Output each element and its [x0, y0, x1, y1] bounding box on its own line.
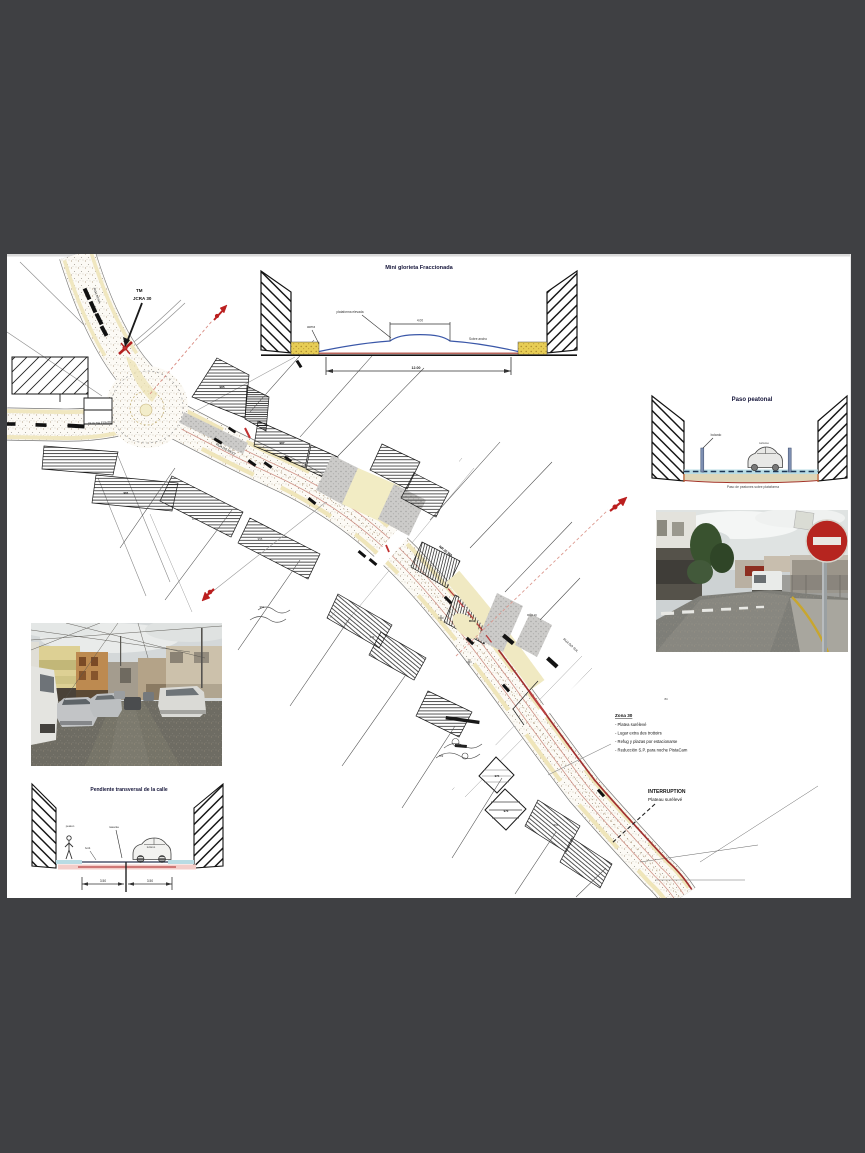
svg-text:acera: acera	[307, 325, 315, 329]
svg-text:974: 974	[495, 774, 500, 778]
svg-text:plataforma elevada: plataforma elevada	[336, 310, 363, 314]
svg-text:rasante: rasante	[109, 825, 119, 829]
svg-text:949: 949	[370, 635, 375, 639]
svg-text:952: 952	[260, 605, 265, 609]
svg-text:- Lugar extra des trottoirs: - Lugar extra des trottoirs	[615, 731, 662, 736]
svg-text:3.50: 3.50	[100, 879, 106, 883]
svg-text:Plateau surélevé: Plateau surélevé	[648, 797, 683, 802]
svg-text:turismo: turismo	[759, 441, 769, 445]
svg-text:Pendiente transversal de la ca: Pendiente transversal de la calle	[90, 787, 167, 793]
svg-text:985: 985	[219, 385, 224, 389]
svg-text:Mini glorieta Fraccionada: Mini glorieta Fraccionada	[385, 265, 453, 271]
svg-text:4.00: 4.00	[417, 319, 423, 323]
svg-text:Paso de peatones sobre platafo: Paso de peatones sobre plataforma	[727, 485, 779, 489]
svg-text:peaton: peaton	[66, 824, 75, 828]
svg-text:- Refug y plazas por estaciona: - Refug y plazas por estacionarse	[615, 739, 678, 744]
svg-text:Paso peatonal: Paso peatonal	[732, 397, 773, 403]
svg-text:Sobre ancho: Sobre ancho	[469, 337, 487, 341]
svg-text:12.00: 12.00	[412, 366, 421, 370]
svg-text:987: 987	[279, 441, 284, 445]
svg-text:RUA: RUA	[469, 619, 475, 623]
svg-text:TM: TM	[136, 288, 143, 293]
svg-text:- Reducción S.P. para noche Pi: - Reducción S.P. para noche PistaCam	[615, 748, 688, 753]
svg-text:bord.: bord.	[85, 846, 91, 850]
svg-text:turismo: turismo	[147, 845, 156, 849]
svg-text:bolardo: bolardo	[711, 433, 722, 437]
svg-text:970: 970	[504, 809, 509, 813]
svg-text:RUA: RUA	[192, 517, 198, 521]
svg-text:INTERRUPTION: INTERRUPTION	[648, 789, 686, 795]
svg-text:JCRA 30: JCRA 30	[133, 296, 152, 301]
svg-text:84: 84	[664, 697, 668, 701]
svg-text:3.50: 3.50	[147, 879, 153, 883]
svg-text:RUA 20: RUA 20	[527, 613, 537, 617]
svg-text:789: 789	[439, 754, 444, 758]
svg-text:966: 966	[554, 823, 559, 827]
svg-text:Zona 30: Zona 30	[615, 713, 633, 718]
svg-text:961: 961	[123, 491, 128, 495]
svg-text:955: 955	[258, 537, 263, 541]
svg-text:- Platea surélevé: - Platea surélevé	[615, 722, 647, 727]
